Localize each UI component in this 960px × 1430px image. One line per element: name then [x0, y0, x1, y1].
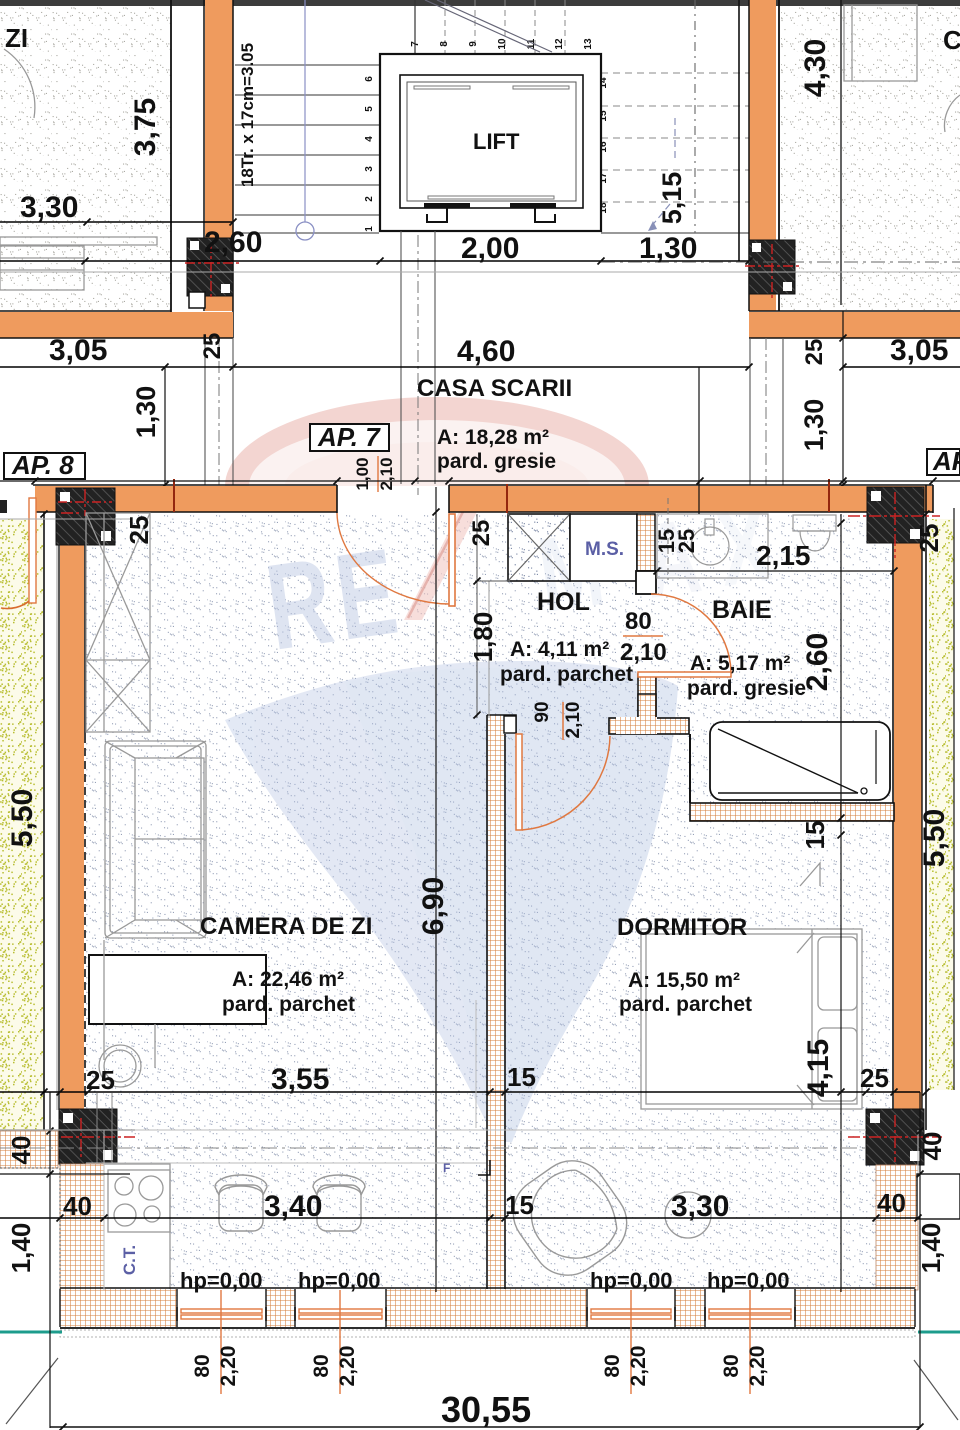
svg-text:3,05: 3,05: [890, 334, 948, 367]
svg-text:18Tr. x 17cm=3.05: 18Tr. x 17cm=3.05: [238, 43, 257, 187]
svg-text:2,20: 2,20: [627, 1346, 650, 1387]
svg-text:1,30: 1,30: [799, 399, 829, 452]
svg-text:pard. parchet: pard. parchet: [500, 663, 633, 686]
svg-text:pard. gresie: pard. gresie: [437, 450, 556, 473]
svg-text:2,60: 2,60: [801, 633, 834, 691]
svg-text:1,30: 1,30: [639, 232, 697, 265]
svg-text:25: 25: [199, 333, 226, 360]
svg-text:1,80: 1,80: [468, 612, 498, 663]
svg-text:2: 2: [364, 196, 375, 202]
svg-text:6,90: 6,90: [417, 877, 450, 935]
svg-text:AP. 7: AP. 7: [317, 422, 381, 452]
svg-text:12: 12: [554, 38, 565, 50]
svg-text:3: 3: [364, 166, 375, 172]
svg-text:1,40: 1,40: [916, 1223, 946, 1274]
svg-text:pard. parchet: pard. parchet: [619, 993, 752, 1016]
svg-text:AP: AP: [932, 446, 960, 476]
svg-text:2,60: 2,60: [204, 226, 262, 259]
svg-text:5,50: 5,50: [6, 789, 39, 847]
svg-text:30,55: 30,55: [441, 1389, 531, 1430]
svg-text:90: 90: [532, 701, 553, 722]
svg-text:A: 18,28 m²: A: 18,28 m²: [437, 426, 549, 449]
svg-text:2,10: 2,10: [620, 639, 667, 666]
svg-text:4,60: 4,60: [457, 335, 515, 368]
svg-text:9: 9: [468, 41, 479, 47]
svg-text:pard. gresie: pard. gresie: [687, 677, 806, 700]
svg-text:25: 25: [801, 339, 828, 366]
svg-text:4,30: 4,30: [799, 39, 832, 97]
svg-text:25: 25: [914, 524, 944, 553]
svg-text:3,40: 3,40: [264, 1190, 322, 1223]
svg-text:25: 25: [468, 520, 495, 547]
svg-text:80: 80: [191, 1354, 214, 1377]
svg-text:2,15: 2,15: [756, 540, 811, 571]
svg-text:15: 15: [505, 1190, 534, 1220]
svg-text:3,30: 3,30: [20, 191, 78, 224]
svg-text:8: 8: [439, 41, 450, 47]
svg-text:40: 40: [917, 1132, 947, 1161]
svg-text:2,20: 2,20: [336, 1346, 359, 1387]
svg-text:ZI: ZI: [5, 23, 28, 53]
svg-text:25: 25: [860, 1063, 889, 1093]
svg-text:10: 10: [497, 38, 508, 50]
svg-text:3,75: 3,75: [129, 98, 162, 156]
svg-text:A: 22,46 m²: A: 22,46 m²: [232, 968, 344, 991]
svg-text:A: 15,50 m²: A: 15,50 m²: [628, 969, 740, 992]
svg-text:2,10: 2,10: [563, 702, 584, 739]
svg-text:3,05: 3,05: [49, 334, 107, 367]
svg-text:6: 6: [364, 76, 375, 82]
svg-text:LIFT: LIFT: [473, 129, 520, 154]
svg-text:1,40: 1,40: [6, 1223, 36, 1274]
svg-text:hp=0,00: hp=0,00: [180, 1268, 263, 1293]
svg-text:5,15: 5,15: [657, 172, 687, 225]
svg-text:2,20: 2,20: [217, 1346, 240, 1387]
svg-text:3,55: 3,55: [271, 1063, 329, 1096]
svg-text:AP. 8: AP. 8: [11, 450, 74, 480]
svg-text:2,20: 2,20: [746, 1346, 769, 1387]
svg-text:hp=0,00: hp=0,00: [298, 1268, 381, 1293]
svg-text:80: 80: [310, 1354, 333, 1377]
svg-text:CASA SCARII: CASA SCARII: [417, 375, 572, 402]
svg-text:M.S.: M.S.: [585, 539, 624, 560]
svg-text:2,10: 2,10: [377, 457, 396, 490]
svg-text:3,30: 3,30: [671, 1190, 729, 1223]
svg-text:1,00: 1,00: [353, 457, 372, 490]
svg-text:40: 40: [6, 1136, 36, 1165]
svg-text:4,15: 4,15: [802, 1039, 835, 1097]
svg-text:pard. parchet: pard. parchet: [222, 993, 355, 1016]
svg-text:40: 40: [877, 1188, 906, 1218]
svg-text:hp=0,00: hp=0,00: [590, 1268, 673, 1293]
svg-text:15: 15: [654, 529, 679, 553]
svg-text:4: 4: [364, 136, 375, 142]
svg-text:HOL: HOL: [537, 588, 590, 616]
svg-text:13: 13: [583, 38, 594, 50]
svg-text:A: 5,17 m²: A: 5,17 m²: [690, 652, 790, 675]
svg-text:15: 15: [507, 1062, 536, 1092]
svg-text:25: 25: [86, 1065, 115, 1095]
svg-text:1,30: 1,30: [131, 386, 161, 439]
svg-text:15: 15: [800, 821, 830, 850]
svg-text:CAMERA DE ZI: CAMERA DE ZI: [200, 913, 372, 940]
svg-text:hp=0,00: hp=0,00: [707, 1268, 790, 1293]
svg-text:C: C: [943, 25, 960, 55]
svg-text:C.T.: C.T.: [120, 1245, 139, 1275]
svg-text:40: 40: [63, 1191, 92, 1221]
svg-text:BAIE: BAIE: [712, 596, 772, 624]
svg-text:25: 25: [124, 516, 154, 545]
svg-text:DORMITOR: DORMITOR: [617, 914, 747, 941]
svg-text:80: 80: [601, 1354, 624, 1377]
svg-text:F: F: [443, 1161, 450, 1175]
svg-text:80: 80: [720, 1354, 743, 1377]
svg-text:1: 1: [364, 226, 375, 232]
svg-text:A: 4,11 m²: A: 4,11 m²: [510, 638, 609, 661]
svg-text:80: 80: [625, 608, 652, 635]
svg-text:5,50: 5,50: [918, 809, 951, 867]
svg-text:2,00: 2,00: [461, 232, 519, 265]
svg-text:5: 5: [364, 106, 375, 112]
